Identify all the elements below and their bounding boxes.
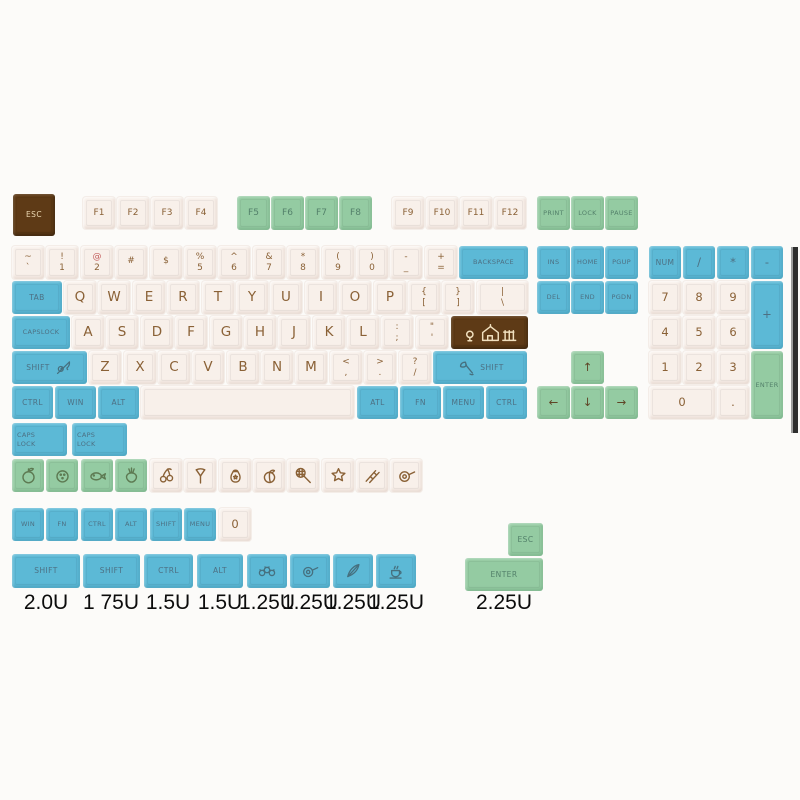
size-label: 1.25U (368, 591, 424, 615)
key-label: F1 (94, 209, 105, 218)
key-label: ] (456, 299, 460, 308)
key-label: F6 (282, 209, 293, 218)
key-novelty-net (287, 459, 319, 492)
key-j: J (278, 316, 310, 349)
key-label: CTRL (22, 399, 43, 407)
key-num-1: 1 (649, 351, 681, 384)
key-label: ; (395, 334, 398, 343)
key-label: - (765, 257, 769, 269)
key-novelty-pan (390, 459, 422, 492)
key-num-multiply: * (717, 246, 749, 279)
key-label: K (325, 326, 334, 340)
key-0-small: 0 (219, 508, 251, 541)
key-label: PGDN (611, 294, 631, 301)
key-novelty-star-fragment (322, 459, 354, 492)
key-arrow-right: → (605, 386, 638, 419)
key-f8: F8 (339, 196, 372, 230)
key-num-2: 2 (683, 351, 715, 384)
key-k: K (313, 316, 345, 349)
key-end: END (571, 281, 604, 314)
key-label: ESC (26, 211, 42, 219)
key-shift-right: SHIFT (433, 351, 527, 384)
key-novelty-branch (356, 459, 388, 492)
axe-icon (456, 358, 476, 378)
key-slash: ?/ (399, 351, 431, 384)
key-label: < (342, 358, 350, 367)
key-label: 0 (678, 397, 685, 409)
star-icon (328, 465, 349, 486)
key-novelty-turnip (115, 459, 147, 492)
key-esc: ESC (13, 194, 55, 236)
key-label: F12 (502, 209, 519, 218)
key-lock: LOCK (571, 196, 604, 230)
key-label: + (437, 253, 445, 262)
key-label: S (118, 326, 127, 340)
key-label: ↓ (583, 397, 593, 409)
key-label: @ (93, 253, 102, 262)
coffee-icon (386, 561, 406, 581)
key-label: 7 (661, 292, 668, 304)
key-bracket-right: }] (442, 281, 474, 314)
key-label: ← (549, 397, 559, 409)
key-fn-small: FN (46, 508, 78, 541)
key-home: HOME (571, 246, 604, 279)
key-label: . (731, 397, 735, 409)
key-novelty-apple (12, 459, 44, 492)
key-numlock: NUM (649, 246, 681, 279)
key-label: WIN (67, 399, 83, 407)
key-win: WIN (55, 386, 96, 419)
photo-edge-artifact (791, 247, 798, 433)
key-label: SHIFT (156, 521, 176, 528)
key-label: / (413, 369, 416, 378)
key-label: 2 (94, 264, 100, 273)
key-label: ↑ (583, 362, 593, 374)
key-label: = (437, 264, 445, 273)
key-label: F2 (128, 209, 139, 218)
key-shift-small: SHIFT (150, 508, 182, 541)
key-0: )0 (356, 246, 388, 279)
key-label: SHIFT (26, 364, 49, 372)
key-label: D (152, 326, 162, 340)
key-label: MENU (190, 521, 211, 528)
key-label: V (203, 361, 212, 375)
key-b: B (227, 351, 259, 384)
key-novelty-fish (81, 459, 113, 492)
size-label: 1 75U (83, 591, 139, 615)
key-ins: INS (537, 246, 570, 279)
key-ctrl-right: CTRL (486, 386, 527, 419)
key-e: E (133, 281, 165, 314)
key-label: ALT (111, 399, 125, 407)
key-label: FN (415, 399, 426, 407)
key-label: ESC (518, 536, 534, 544)
key-label: ( (336, 253, 340, 262)
key-label: ' (431, 334, 433, 343)
key-label: TAB (29, 294, 44, 302)
key-x: X (124, 351, 156, 384)
key-r: R (167, 281, 199, 314)
size-label: 2.25U (476, 591, 532, 615)
key-1: !1 (46, 246, 78, 279)
key-tilde: ~` (12, 246, 44, 279)
key-num-9: 9 (717, 281, 749, 314)
size-label: 2.0U (24, 591, 68, 615)
feather-icon (343, 561, 363, 581)
key-novelty-coconut (46, 459, 78, 492)
key-label: % (196, 253, 205, 262)
key-label: X (135, 361, 144, 375)
key-label: 0 (231, 519, 238, 531)
key-fn: FN (400, 386, 441, 419)
key-novelty-villagers (247, 554, 287, 588)
key-label: " (430, 323, 434, 332)
key-bracket-left: {[ (408, 281, 440, 314)
key-d: D (141, 316, 173, 349)
key-label: INS (548, 259, 560, 266)
key-alt-small: ALT (115, 508, 147, 541)
key-m: M (295, 351, 327, 384)
key-f11: F11 (460, 197, 492, 229)
key-label: ? (413, 358, 418, 367)
key-capslock-alt-2: CAPSLOCK (72, 423, 127, 456)
key-arrow-down: ↓ (571, 386, 604, 419)
key-ctrl-left: CTRL (12, 386, 53, 419)
key-shift-2u: SHIFT (12, 554, 80, 588)
key-print: PRINT (537, 196, 570, 230)
key-menu: MENU (443, 386, 484, 419)
branch-icon (362, 465, 383, 486)
key-label: F4 (196, 209, 207, 218)
key-label: C (169, 361, 178, 375)
key-novelty-feather (333, 554, 373, 588)
apple-icon (18, 465, 39, 486)
key-pgdn: PGDN (605, 281, 638, 314)
key-label: F11 (468, 209, 485, 218)
key-label: H (255, 326, 265, 340)
key-novelty-pan-blue (290, 554, 330, 588)
key-arrow-left: ← (537, 386, 570, 419)
key-enter-225u: ENTER (465, 558, 543, 591)
key-label: } (455, 288, 461, 297)
key-pgup: PGUP (605, 246, 638, 279)
key-label: CAPS (17, 432, 35, 439)
key-label: 8 (300, 264, 306, 273)
pan-icon (396, 465, 417, 486)
key-label: LOCK (77, 441, 96, 448)
key-9: (9 (322, 246, 354, 279)
key-label: F9 (403, 209, 414, 218)
key-label: [ (422, 299, 426, 308)
key-label: P (386, 291, 394, 305)
key-label: 9 (729, 292, 736, 304)
key-a: A (72, 316, 104, 349)
key-label: MENU (452, 399, 476, 407)
key-label: ALT (125, 521, 137, 528)
pan-icon (300, 561, 320, 581)
key-pause: PAUSE (605, 196, 638, 230)
key-f7: F7 (305, 196, 338, 230)
key-label: 4 (661, 327, 668, 339)
key-label: O (350, 291, 361, 305)
key-label: LOCK (17, 441, 36, 448)
key-num-7: 7 (649, 281, 681, 314)
key-f9: F9 (392, 197, 424, 229)
key-num-dot: . (717, 386, 749, 419)
key-label: SHIFT (480, 364, 503, 372)
key-l: L (347, 316, 379, 349)
key-backspace: BACKSPACE (459, 246, 528, 279)
key-equals: += (425, 246, 457, 279)
key-label: ~ (24, 253, 32, 262)
key-tab: TAB (12, 281, 62, 314)
key-backslash: |\ (477, 281, 528, 314)
key-num-plus: + (751, 281, 783, 349)
keycap-set-board: ESCF1F2F3F4F5F6F7F8F9F10F11F12PRINTLOCKP… (0, 0, 800, 800)
key-label: F10 (434, 209, 451, 218)
key-f10: F10 (426, 197, 458, 229)
key-num-6: 6 (717, 316, 749, 349)
key-label: T (214, 291, 222, 305)
key-label: ^ (230, 253, 238, 262)
key-num-divide: / (683, 246, 715, 279)
key-label: ENTER (491, 571, 518, 579)
key-label: Z (100, 361, 109, 375)
key-minus: -_ (390, 246, 422, 279)
key-label: NUM (656, 259, 675, 267)
key-label: : (395, 323, 398, 332)
key-ctrl-small: CTRL (81, 508, 113, 541)
key-label: F7 (316, 209, 327, 218)
coconut-icon (52, 465, 73, 486)
key-g: G (210, 316, 242, 349)
key-label: 3 (729, 362, 736, 374)
key-label: * (301, 253, 306, 262)
key-shift-175u: SHIFT (83, 554, 140, 588)
key-2: @2 (81, 246, 113, 279)
key-label: A (83, 326, 92, 340)
key-f4: F4 (185, 197, 217, 229)
key-num-3: 3 (717, 351, 749, 384)
key-label: CAPS (77, 432, 95, 439)
key-period: >. (364, 351, 396, 384)
key-label: 6 (729, 327, 736, 339)
key-quote: "' (416, 316, 448, 349)
key-label: 0 (369, 264, 375, 273)
key-f: F (175, 316, 207, 349)
key-label: G (221, 326, 231, 340)
key-n: N (261, 351, 293, 384)
key-label: PGUP (612, 259, 631, 266)
key-label: CTRL (158, 567, 179, 575)
key-label: CTRL (496, 399, 517, 407)
key-shift-left: SHIFT (12, 351, 87, 384)
key-label: * (730, 257, 736, 269)
net-icon (293, 465, 314, 486)
key-spacebar (141, 386, 354, 419)
key-u: U (270, 281, 302, 314)
key-label: R (178, 291, 187, 305)
key-label: 5 (695, 327, 702, 339)
key-num-4: 4 (649, 316, 681, 349)
key-label: ! (60, 253, 64, 262)
key-6: ^6 (218, 246, 250, 279)
peach-icon (259, 465, 280, 486)
key-label: DEL (547, 294, 561, 301)
key-h: H (244, 316, 276, 349)
key-ctrl-15u: CTRL (144, 554, 193, 588)
key-label: CAPSLOCK (23, 329, 60, 336)
key-label: F (187, 326, 195, 340)
key-label: ENTER (755, 382, 778, 389)
key-label: E (145, 291, 154, 305)
key-label: WIN (21, 521, 35, 528)
key-arrow-up: ↑ (571, 351, 604, 384)
key-novelty-peach (253, 459, 285, 492)
key-label: ` (26, 264, 31, 273)
key-label: BACKSPACE (473, 259, 514, 266)
key-f6: F6 (271, 196, 304, 230)
key-label: & (265, 253, 272, 262)
key-label: \ (501, 299, 504, 308)
key-label: . (379, 369, 382, 378)
key-label: HOME (577, 259, 598, 266)
key-c: C (158, 351, 190, 384)
key-f5: F5 (237, 196, 270, 230)
size-label: 1.5U (146, 591, 190, 615)
key-label: 7 (266, 264, 272, 273)
key-label: SHIFT (100, 567, 123, 575)
key-label: > (376, 358, 384, 367)
key-f3: F3 (151, 197, 183, 229)
key-q: Q (64, 281, 96, 314)
key-label: I (319, 291, 323, 305)
key-label: + (762, 309, 772, 321)
key-label: _ (404, 264, 409, 273)
key-num-8: 8 (683, 281, 715, 314)
key-label: Q (75, 291, 86, 305)
key-esc-green: ESC (508, 523, 543, 556)
key-alt-left: ALT (98, 386, 139, 419)
key-capslock-alt-1: CAPSLOCK (12, 423, 67, 456)
key-enter-novelty (451, 316, 528, 349)
key-novelty-coffee (376, 554, 416, 588)
key-o: O (339, 281, 371, 314)
bellbag-icon (225, 465, 246, 486)
key-label: L (359, 326, 367, 340)
key-atl: ATL (357, 386, 398, 419)
key-label: U (281, 291, 291, 305)
turnip-icon (121, 465, 142, 486)
key-y: Y (236, 281, 268, 314)
key-label: { (421, 288, 427, 297)
key-novelty-cherries (150, 459, 182, 492)
villagers-icon (255, 561, 279, 581)
key-label: B (238, 361, 247, 375)
key-del: DEL (537, 281, 570, 314)
key-menu-small: MENU (184, 508, 216, 541)
key-label: / (697, 257, 701, 269)
key-label: ATL (370, 399, 385, 407)
key-label: F8 (350, 209, 361, 218)
key-s: S (106, 316, 138, 349)
key-7: &7 (253, 246, 285, 279)
key-label: - (404, 253, 407, 262)
key-label: PRINT (543, 210, 564, 217)
key-f2: F2 (117, 197, 149, 229)
key-alt-15u: ALT (197, 554, 243, 588)
fish-icon (87, 465, 108, 486)
key-label: FN (57, 521, 66, 528)
key-label: # (127, 257, 135, 266)
key-label: 1 (661, 362, 668, 374)
key-label: 1 (59, 264, 65, 273)
key-label: F5 (248, 209, 259, 218)
key-label: , (345, 369, 348, 378)
key-4: $ (150, 246, 182, 279)
key-label: F3 (162, 209, 173, 218)
key-label: J (292, 326, 296, 340)
key-novelty-bell-bag (219, 459, 251, 492)
key-label: 6 (231, 264, 237, 273)
key-label: 5 (197, 264, 203, 273)
key-num-enter: ENTER (751, 351, 783, 419)
key-t: T (202, 281, 234, 314)
key-label: PAUSE (610, 210, 632, 217)
key-capslock: CAPSLOCK (12, 316, 70, 349)
key-label: LOCK (578, 210, 597, 217)
key-label: W (107, 291, 120, 305)
house-icon (459, 322, 521, 344)
cherries-icon (156, 465, 177, 486)
key-f1: F1 (83, 197, 115, 229)
key-label: | (501, 288, 504, 297)
key-label: $ (163, 257, 169, 266)
key-p: P (374, 281, 406, 314)
key-3: # (115, 246, 147, 279)
key-num-0: 0 (649, 386, 715, 419)
slingshot-icon (190, 465, 211, 486)
key-num-minus: - (751, 246, 783, 279)
key-num-5: 5 (683, 316, 715, 349)
key-label: 8 (695, 292, 702, 304)
key-label: 9 (335, 264, 341, 273)
key-label: → (617, 397, 627, 409)
key-novelty-slingshot (184, 459, 216, 492)
key-label: Y (248, 291, 256, 305)
key-label: CTRL (88, 521, 106, 528)
key-8: *8 (287, 246, 319, 279)
key-w: W (98, 281, 130, 314)
key-comma: <, (330, 351, 362, 384)
key-f12: F12 (494, 197, 526, 229)
size-label: 1.5U (198, 591, 242, 615)
key-label: 2 (695, 362, 702, 374)
key-z: Z (89, 351, 121, 384)
rod-icon (54, 358, 73, 377)
key-win-small: WIN (12, 508, 44, 541)
key-5: %5 (184, 246, 216, 279)
key-semicolon: :; (381, 316, 413, 349)
key-v: V (192, 351, 224, 384)
key-i: I (305, 281, 337, 314)
key-label: M (305, 361, 317, 375)
key-label: ALT (213, 567, 227, 575)
key-label: END (580, 294, 595, 301)
key-label: SHIFT (34, 567, 57, 575)
key-label: ) (370, 253, 374, 262)
key-label: N (272, 361, 282, 375)
